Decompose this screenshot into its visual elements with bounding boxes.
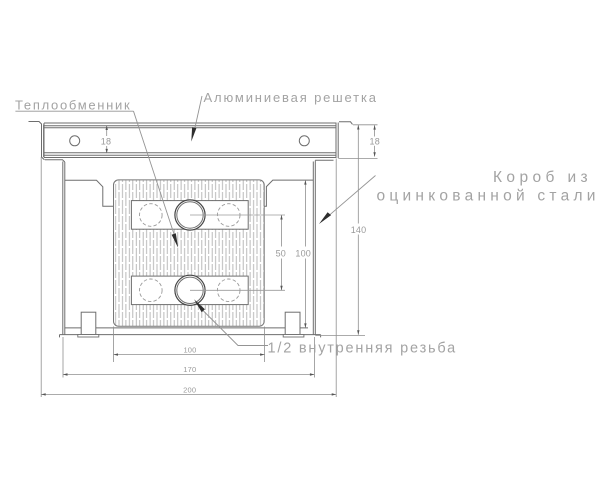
- svg-text:140: 140: [351, 225, 367, 235]
- svg-text:Короб из: Короб из: [493, 169, 592, 186]
- svg-text:оцинкованной стали: оцинкованной стали: [377, 187, 600, 204]
- svg-text:Теплообменник: Теплообменник: [15, 97, 131, 112]
- svg-text:18: 18: [369, 136, 379, 146]
- svg-text:200: 200: [183, 385, 196, 394]
- svg-text:Алюминиевая решетка: Алюминиевая решетка: [204, 90, 378, 105]
- svg-text:1/2 внутренняя резьба: 1/2 внутренняя резьба: [268, 340, 458, 356]
- svg-text:100: 100: [183, 345, 196, 354]
- svg-text:18: 18: [101, 137, 111, 147]
- svg-text:50: 50: [276, 249, 286, 259]
- svg-text:100: 100: [295, 249, 311, 259]
- svg-text:170: 170: [183, 365, 196, 374]
